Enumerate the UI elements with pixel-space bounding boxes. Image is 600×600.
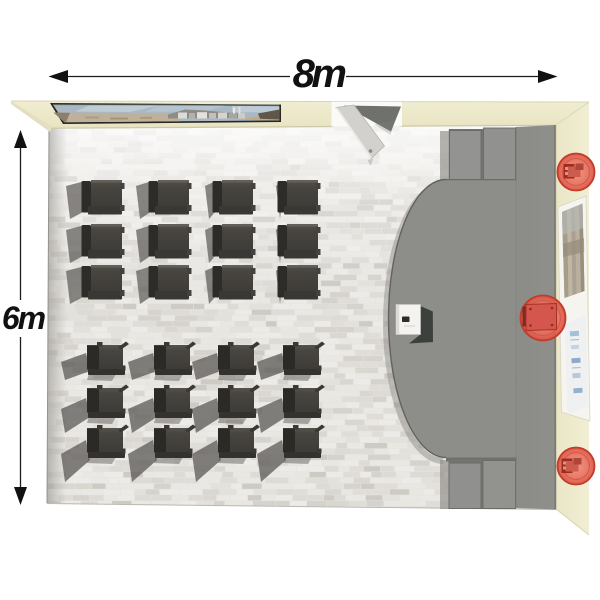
svg-text:8m: 8m <box>293 52 346 96</box>
svg-text:6m: 6m <box>2 300 46 336</box>
